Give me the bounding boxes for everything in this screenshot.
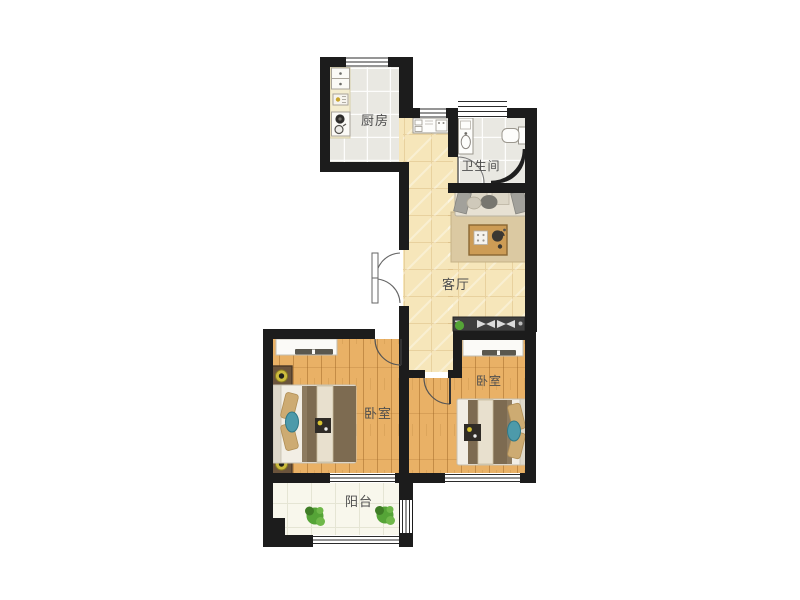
kitchen-window xyxy=(346,57,388,67)
entry-plant-icon xyxy=(455,321,464,330)
living-room-double-door xyxy=(372,250,400,306)
bedroom-right-label: 卧室 xyxy=(476,373,502,388)
kitchen-cabinet-icon xyxy=(332,68,350,89)
bed-left xyxy=(273,385,356,463)
toilet-icon xyxy=(502,127,526,144)
kitchen-label: 厨房 xyxy=(361,113,389,129)
sofa xyxy=(454,190,529,216)
balcony-label: 阳台 xyxy=(345,495,373,510)
bedroom-left-label: 卧室 xyxy=(364,406,392,422)
bed-right xyxy=(457,399,527,465)
small-appliance-icon xyxy=(333,94,348,105)
coffee-table xyxy=(469,225,507,255)
entrance-cabinet xyxy=(453,317,525,331)
living-room-label: 客厅 xyxy=(442,277,470,293)
kitchen-sink-stove-icon xyxy=(332,112,351,136)
wardrobe-left xyxy=(276,339,337,355)
balcony-side-window xyxy=(400,500,412,533)
washer-counter-icon xyxy=(413,118,450,133)
bathroom-label: 卫生间 xyxy=(461,159,500,173)
bedroom-right-window xyxy=(445,473,520,483)
hall-window xyxy=(420,108,446,118)
nightstand-top xyxy=(271,366,292,386)
balcony-door-window xyxy=(330,473,395,483)
bathroom-window xyxy=(458,100,507,118)
vanity-sink-icon xyxy=(459,118,474,154)
floorplan-svg: 厨房 卫生间 客厅 卧室 卧室 阳台 xyxy=(0,0,800,600)
floorplan-canvas: 厨房 卫生间 客厅 卧室 卧室 阳台 xyxy=(0,0,800,600)
balcony-bottom-window xyxy=(313,535,399,545)
